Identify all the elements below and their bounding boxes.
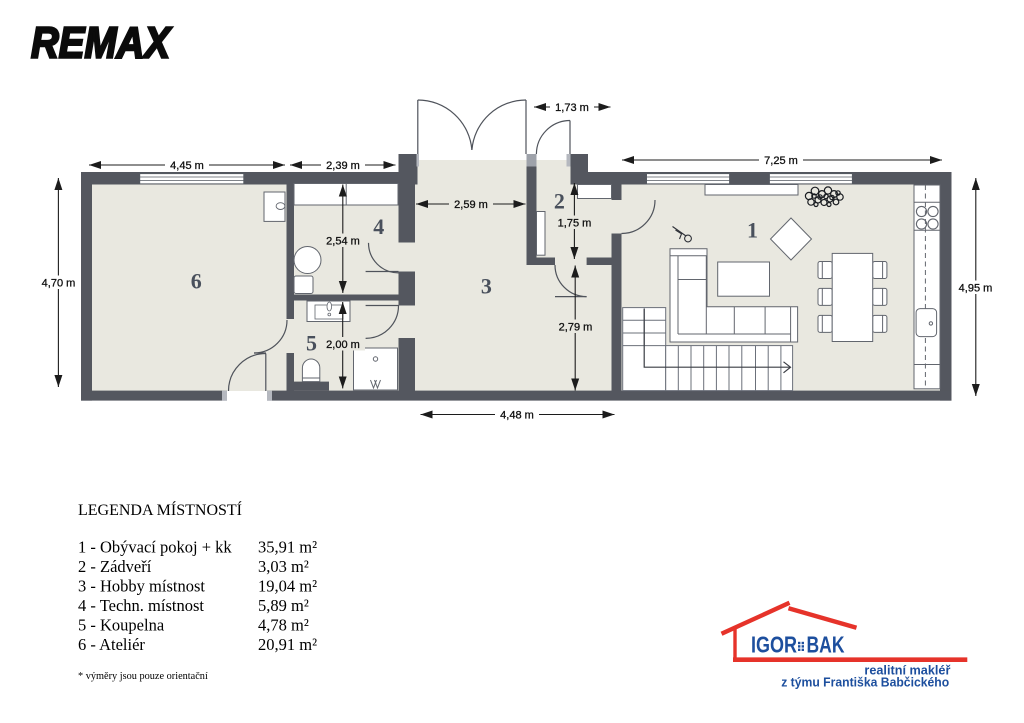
svg-text:2: 2 — [554, 189, 565, 214]
svg-text:7,25 m: 7,25 m — [764, 155, 798, 167]
svg-text:2,54 m: 2,54 m — [326, 236, 360, 248]
svg-text:6: 6 — [191, 269, 202, 294]
svg-text:35,91 m²: 35,91 m² — [258, 538, 317, 557]
svg-text:4,95 m: 4,95 m — [959, 283, 993, 295]
svg-text:4,78 m²: 4,78 m² — [258, 616, 309, 635]
svg-text:2,00 m: 2,00 m — [326, 339, 360, 351]
svg-text:2,59 m: 2,59 m — [454, 199, 488, 211]
svg-text:4 - Techn. místnost: 4 - Techn. místnost — [78, 596, 204, 615]
svg-text:2,79 m: 2,79 m — [559, 322, 593, 334]
svg-text:5: 5 — [306, 330, 317, 355]
svg-text:4,70 m: 4,70 m — [42, 278, 76, 290]
svg-text:1: 1 — [747, 218, 758, 243]
svg-text:5,89 m²: 5,89 m² — [258, 596, 309, 615]
svg-text:IGOR: IGOR — [751, 632, 797, 658]
svg-text:2,39 m: 2,39 m — [326, 160, 360, 172]
svg-text:20,91 m²: 20,91 m² — [258, 635, 317, 654]
svg-text:REMAX: REMAX — [31, 19, 172, 68]
svg-text:4: 4 — [373, 214, 384, 239]
svg-text:BAK: BAK — [807, 632, 845, 658]
svg-text:LEGENDA MÍSTNOSTÍ: LEGENDA MÍSTNOSTÍ — [78, 500, 242, 519]
svg-text:5 - Koupelna: 5 - Koupelna — [78, 616, 165, 635]
svg-text:3,03 m²: 3,03 m² — [258, 557, 309, 576]
svg-text:1,73 m: 1,73 m — [555, 102, 589, 114]
svg-text:2 - Zádveří: 2 - Zádveří — [78, 557, 152, 576]
svg-text:* výměry jsou pouze orientační: * výměry jsou pouze orientační — [78, 671, 208, 682]
svg-text:z týmu Františka Babčického: z týmu Františka Babčického — [781, 674, 949, 689]
svg-text:1 - Obývací pokoj + kk: 1 - Obývací pokoj + kk — [78, 538, 232, 557]
svg-text:4,48 m: 4,48 m — [500, 410, 534, 422]
svg-text:4,45 m: 4,45 m — [170, 160, 204, 172]
svg-text:1,75 m: 1,75 m — [558, 218, 592, 230]
svg-text:19,04 m²: 19,04 m² — [258, 577, 317, 596]
svg-text:6 - Ateliér: 6 - Ateliér — [78, 635, 145, 654]
svg-text:3: 3 — [481, 274, 492, 299]
svg-text:3 - Hobby místnost: 3 - Hobby místnost — [78, 577, 205, 596]
